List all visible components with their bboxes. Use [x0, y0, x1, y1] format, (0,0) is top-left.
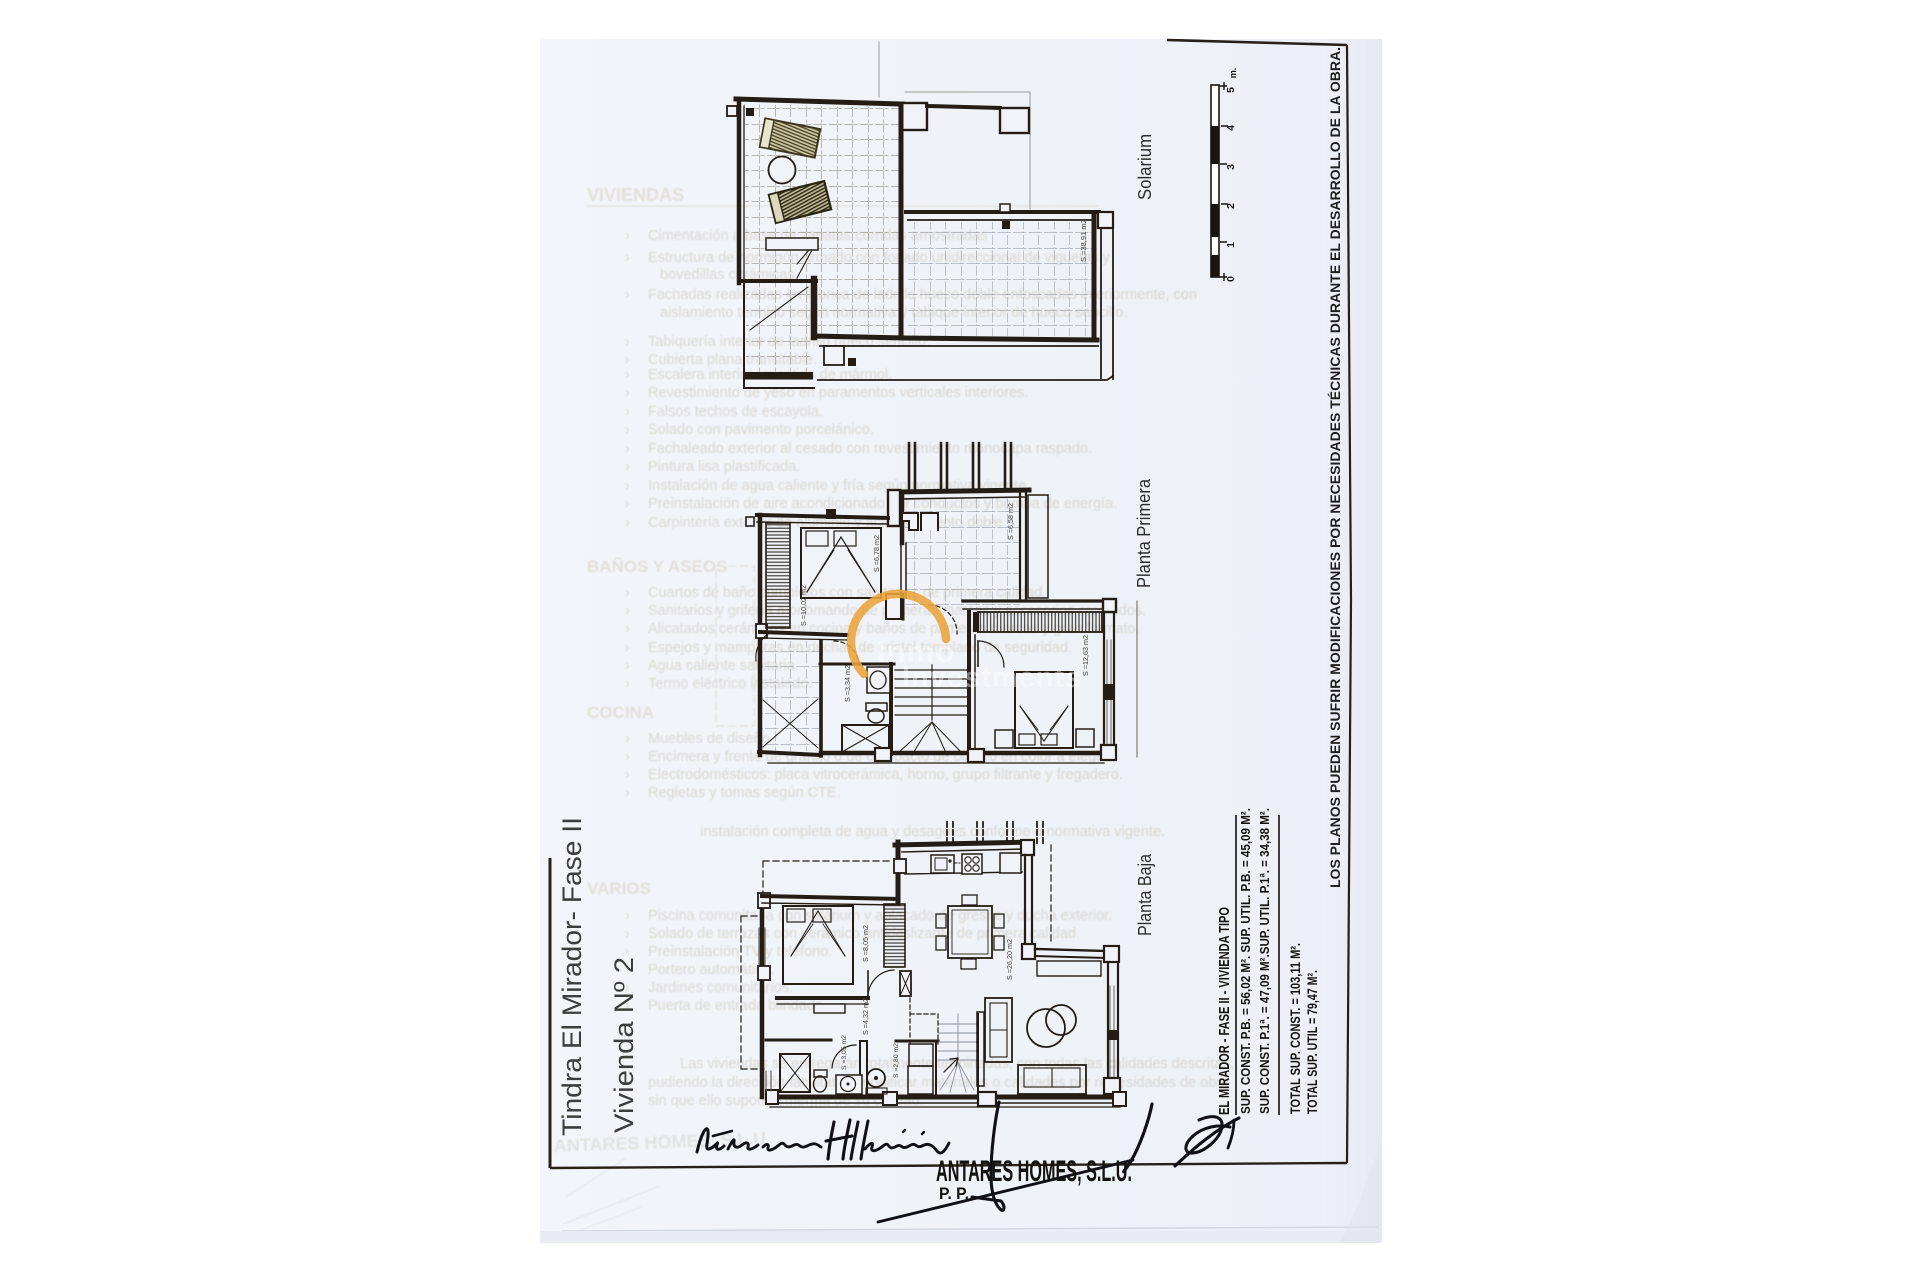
svg-text:›: › — [625, 367, 630, 383]
svg-text:›: › — [625, 496, 630, 512]
svg-text:VARIOS: VARIOS — [587, 879, 651, 898]
svg-text:›: › — [625, 515, 630, 531]
svg-text:TOTAL SUP. CONST. = 103,11 M².: TOTAL SUP. CONST. = 103,11 M². — [1288, 943, 1303, 1114]
svg-text:instalación completa de agua y: instalación completa de agua y desagües … — [700, 824, 1165, 840]
svg-text:Planta Primera: Planta Primera — [1133, 478, 1154, 588]
svg-text:›: › — [625, 385, 630, 401]
svg-text:Tindra El Mirador- Fase II: Tindra El Mirador- Fase II — [557, 817, 587, 1136]
svg-text:›: › — [625, 621, 630, 637]
svg-text:›: › — [625, 459, 630, 475]
svg-text:Jardines comunitarios.: Jardines comunitarios. — [648, 980, 793, 996]
svg-text:S =2,80 m2: S =2,80 m2 — [893, 1043, 900, 1078]
svg-text:Muebles de diseño.: Muebles de diseño. — [648, 731, 774, 747]
svg-text:S =3,34 m2: S =3,34 m2 — [843, 665, 852, 702]
svg-text:S =10,02 m2: S =10,02 m2 — [799, 585, 808, 626]
svg-text:S =6,78 m2: S =6,78 m2 — [872, 535, 881, 572]
svg-text:2: 2 — [1225, 203, 1237, 209]
svg-text:›: › — [625, 250, 630, 266]
svg-text:4: 4 — [1225, 125, 1237, 131]
svg-text:Regletas y tomas según CTE.: Regletas y tomas según CTE. — [648, 785, 841, 801]
svg-text:Preinstalación TV y teléfono.: Preinstalación TV y teléfono. — [648, 944, 832, 960]
svg-text:›: › — [625, 908, 630, 924]
svg-text:Vivienda Nº 2: Vivienda Nº 2 — [609, 957, 639, 1133]
svg-text:VIVIENDAS: VIVIENDAS — [587, 185, 684, 205]
svg-text:Fachaleado exterior al cesado: Fachaleado exterior al cesado con revest… — [648, 441, 1092, 457]
svg-text:Espejos y mamparas en duchas d: Espejos y mamparas en duchas de cristal … — [648, 640, 1072, 656]
svg-text:›: › — [625, 640, 630, 656]
svg-text:BAÑOS Y ASEOS: BAÑOS Y ASEOS — [587, 556, 727, 576]
svg-text:›: › — [625, 334, 630, 350]
svg-text:Portero automático.: Portero automático. — [648, 962, 775, 978]
svg-text:1: 1 — [1225, 242, 1237, 248]
svg-text:›: › — [625, 603, 630, 619]
svg-text:Electrodomésticos: placa vitro: Electrodomésticos: placa vitrocerámica, … — [648, 767, 1123, 783]
svg-text:›: › — [625, 767, 630, 783]
svg-text:›: › — [625, 478, 630, 494]
svg-text:5: 5 — [1225, 87, 1237, 93]
svg-text:›: › — [625, 228, 630, 244]
svg-text:S =26,20 m2: S =26,20 m2 — [1005, 939, 1014, 980]
svg-text:›: › — [625, 422, 630, 438]
svg-text:Investments: Investments — [902, 662, 1082, 694]
svg-text:Solado con pavimento porceláni: Solado con pavimento porcelánico. — [648, 422, 874, 438]
svg-text:Planta Baja: Planta Baja — [1134, 853, 1155, 936]
svg-text:EL MIRADOR - FASE II - VIVIEND: EL MIRADOR - FASE II - VIVIENDA TIPO — [1216, 907, 1233, 1115]
svg-text:3: 3 — [1225, 164, 1237, 170]
svg-text:LOS PLANOS PUEDEN SUFRIR MODIF: LOS PLANOS PUEDEN SUFRIR MODIFICACIONES … — [1328, 47, 1343, 888]
svg-text:›: › — [625, 676, 630, 692]
svg-text:TOTAL SUP. UTIL = 79,47 M².: TOTAL SUP. UTIL = 79,47 M². — [1305, 970, 1320, 1114]
svg-text:S =12,63 m2: S =12,63 m2 — [1081, 635, 1090, 676]
svg-text:›: › — [625, 441, 630, 457]
svg-text:›: › — [625, 585, 630, 601]
svg-text:S =3,05 m2: S =3,05 m2 — [841, 1035, 848, 1070]
svg-text:COCINA: COCINA — [587, 703, 654, 722]
svg-text:›: › — [625, 658, 630, 674]
svg-text:S =6,58 m2: S =6,58 m2 — [1006, 503, 1015, 540]
svg-text:S =38,91 m2: S =38,91 m2 — [1079, 219, 1088, 262]
svg-text:›: › — [625, 926, 630, 942]
svg-text:Falsos techos de escayola.: Falsos techos de escayola. — [648, 404, 823, 420]
svg-text:0: 0 — [1225, 276, 1237, 282]
svg-text:›: › — [625, 352, 630, 368]
svg-text:S =8,05 m2: S =8,05 m2 — [861, 925, 870, 962]
svg-text:Pintura lisa plastificada.: Pintura lisa plastificada. — [648, 459, 800, 475]
svg-text:Piscina comunitaria con solári: Piscina comunitaria con solárium y aplac… — [648, 908, 1112, 924]
svg-text:›: › — [625, 731, 630, 747]
svg-text:Puerta de entrada blindada.: Puerta de entrada blindada. — [648, 998, 827, 1014]
svg-text:›: › — [625, 785, 630, 801]
svg-text:m.: m. — [1228, 68, 1238, 79]
svg-text:pudiendo la dirección facultat: pudiendo la dirección facultativa modifi… — [648, 1075, 1230, 1091]
svg-text:SUP. CONST. P.1ª. = 47,09 M².S: SUP. CONST. P.1ª. = 47,09 M².SUP. UTIL. … — [1257, 808, 1272, 1114]
svg-text:Preinstalación de aire acondic: Preinstalación de aire acondicionado por… — [648, 496, 1117, 512]
svg-text:S =4,32 m2: S =4,32 m2 — [861, 998, 870, 1035]
svg-text:Solarium: Solarium — [1134, 134, 1155, 200]
svg-text:SUP. CONST. P.B. = 56,02 M². S: SUP. CONST. P.B. = 56,02 M². SUP. UTIL. … — [1238, 808, 1253, 1114]
svg-text:›: › — [625, 749, 630, 765]
svg-text:›: › — [625, 404, 630, 420]
svg-text:Revestimiento de yeso en param: Revestimiento de yeso en paramentos vert… — [648, 385, 1028, 401]
svg-text:›: › — [625, 287, 630, 303]
